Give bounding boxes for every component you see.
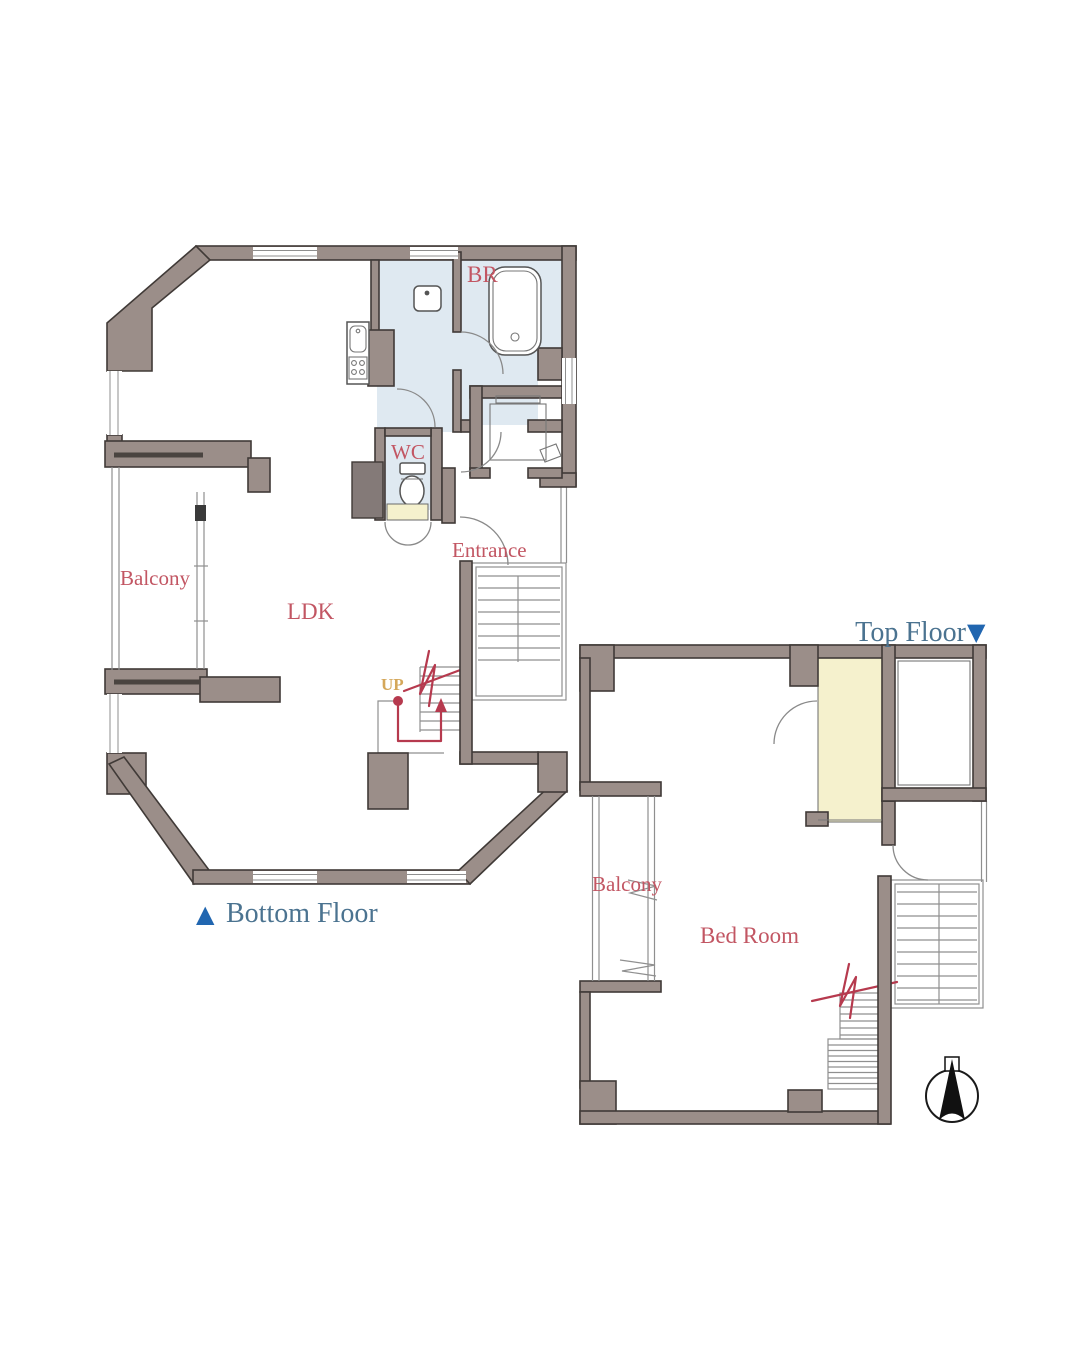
shaft-block	[352, 462, 383, 518]
entrance-stairs	[472, 487, 567, 700]
route-start-dot	[393, 696, 403, 706]
closet-door-arc	[774, 701, 817, 744]
toilet	[400, 463, 425, 506]
void-room-inner	[898, 661, 970, 785]
hatch-mark-lower	[620, 960, 656, 976]
vanity-sink	[414, 286, 441, 311]
kitchen-counter	[347, 322, 369, 384]
room-label-br: BR	[467, 262, 498, 287]
room-label-bedroom: Bed Room	[700, 923, 799, 948]
room-label-ldk: LDK	[287, 599, 335, 624]
top-floor-caption: Top Floor	[855, 617, 967, 648]
room-label-entrance: Entrance	[452, 538, 527, 562]
floor-plan-drawing: Balcony LDK WC BR Entrance UP ▲ Bottom F…	[0, 0, 1080, 1350]
bedroom-door-arc	[893, 845, 928, 880]
wc-step	[387, 504, 428, 520]
floor-plan-page: Balcony LDK WC BR Entrance UP ▲ Bottom F…	[0, 0, 1080, 1350]
north-needle	[939, 1059, 965, 1120]
bottom-floor-caption: Bottom Floor	[226, 898, 378, 929]
window-frame-block	[195, 505, 206, 521]
bottom-floor-marker: ▲	[196, 900, 215, 928]
top-exterior-stairs	[891, 801, 987, 1008]
top-floor-marker: ▼	[967, 618, 986, 646]
route-arrowhead	[435, 698, 447, 712]
bottom-floor-plan: Balcony LDK WC BR Entrance UP ▲ Bottom F…	[105, 246, 576, 929]
closet-floor	[818, 656, 882, 822]
wc-door-left-arc	[385, 522, 408, 545]
room-label-wc: WC	[391, 440, 425, 464]
wc-door-right-arc	[408, 522, 431, 545]
top-floor-plan: Balcony Bed Room Top Floor ▼	[580, 617, 987, 1124]
stairs-up-label: UP	[381, 675, 404, 694]
internal-stairs-up	[378, 651, 471, 753]
room-label-balcony-top: Balcony	[592, 872, 662, 896]
north-arrow	[926, 1057, 978, 1122]
room-label-balcony-bottom: Balcony	[120, 566, 190, 590]
